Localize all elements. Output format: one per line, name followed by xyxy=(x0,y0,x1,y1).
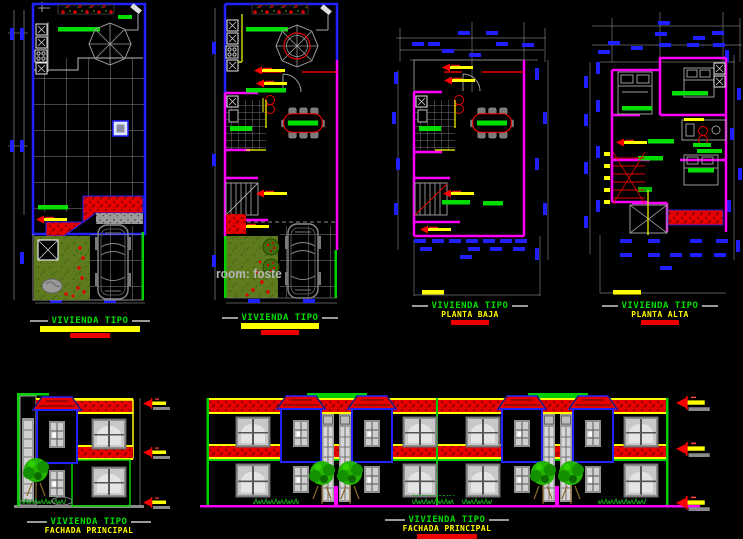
level-marker xyxy=(143,398,170,410)
planta-baja-drawing xyxy=(392,22,548,296)
title-rule xyxy=(702,305,718,307)
window xyxy=(92,419,126,449)
stair-arrow xyxy=(256,190,287,198)
flower-planter xyxy=(252,5,308,14)
planter-box xyxy=(38,240,58,260)
window xyxy=(585,466,601,493)
closet-icon xyxy=(714,76,725,87)
cad-canvas: VIVIENDA TIPO VIVIENDA TIPO VIVIENDA TIP… xyxy=(0,0,743,539)
planta-alta-drawing xyxy=(584,12,742,295)
window xyxy=(236,417,270,447)
title-rule xyxy=(412,305,428,307)
drawing-title: VIVIENDA TIPO xyxy=(622,302,699,310)
title-rule xyxy=(30,320,48,322)
bath-fixtures xyxy=(682,120,726,140)
drawing-subtitle: FACHADA PRINCIPAL xyxy=(403,525,492,533)
double-elevation-title-plate: VIVIENDA TIPO FACHADA PRINCIPAL xyxy=(382,516,512,539)
appliance-icon xyxy=(36,24,47,35)
ground-line xyxy=(200,505,700,508)
sink-icon xyxy=(36,63,47,74)
terrace xyxy=(630,190,667,235)
stair-window xyxy=(543,414,555,502)
wc-fixture xyxy=(418,110,427,122)
drawing-subtitle: PLANTA ALTA xyxy=(631,311,688,319)
flower-planter xyxy=(58,5,114,14)
plan-tree xyxy=(263,239,279,255)
drawing-title: VIVIENDA TIPO xyxy=(409,516,486,524)
entry-door-line xyxy=(555,486,559,506)
level-marker xyxy=(143,497,170,509)
title-rule xyxy=(512,305,528,307)
window xyxy=(624,417,658,447)
entry-tower xyxy=(348,396,396,462)
pergola-fan xyxy=(89,23,131,65)
title-underline-yellow xyxy=(241,323,319,329)
watermark-text: room: foste xyxy=(216,266,282,281)
window xyxy=(236,464,270,497)
dining-set xyxy=(281,108,325,138)
drawing-title: VIVIENDA TIPO xyxy=(432,302,509,310)
entry-tower xyxy=(277,396,325,462)
title-rule xyxy=(489,519,509,521)
window xyxy=(293,466,309,493)
entry-tower xyxy=(33,397,81,463)
title-rule xyxy=(131,521,151,523)
title-rule xyxy=(222,317,238,319)
title-underline-yellow xyxy=(40,326,140,332)
window xyxy=(92,467,126,497)
level-marker xyxy=(676,442,710,457)
door-arrow xyxy=(254,67,285,75)
planta-baja-title-plate: VIVIENDA TIPO PLANTA BAJA xyxy=(408,302,532,325)
appliance-icon xyxy=(227,33,238,44)
stair-window xyxy=(322,414,334,502)
title-underline-red xyxy=(417,534,477,539)
roof-plan-title-plate: VIVIENDA TIPO xyxy=(28,317,152,338)
title-rule xyxy=(132,320,150,322)
title-underline-red xyxy=(70,333,110,338)
stairs xyxy=(415,183,447,215)
window xyxy=(624,464,658,497)
title-underline-red xyxy=(261,330,299,335)
closet-icon xyxy=(714,63,725,74)
title-rule xyxy=(322,317,338,319)
drawing-title: VIVIENDA TIPO xyxy=(52,317,129,325)
entry-tower xyxy=(569,396,617,462)
fixture-icon xyxy=(416,96,427,107)
drawing-subtitle: FACHADA PRINCIPAL xyxy=(45,527,134,535)
drawing-subtitle: PLANTA BAJA xyxy=(441,311,498,319)
terrace-roof-hatch xyxy=(668,210,723,225)
stove-icon xyxy=(226,46,238,58)
furnished-plan-title-plate: VIVIENDA TIPO xyxy=(218,314,342,335)
drawing-title: VIVIENDA TIPO xyxy=(242,314,319,322)
level-marker xyxy=(676,496,710,511)
stove-icon xyxy=(35,50,47,62)
window xyxy=(403,464,437,497)
shrubs xyxy=(598,496,646,505)
door-arrow xyxy=(444,77,475,85)
single-elevation-title-plate: VIVIENDA TIPO FACHADA PRINCIPAL xyxy=(24,518,154,535)
garden-rock xyxy=(42,279,62,293)
stairs xyxy=(226,183,258,215)
cad-linework xyxy=(0,0,743,539)
door-arrow xyxy=(420,226,451,234)
window xyxy=(364,466,380,493)
appliance-icon xyxy=(227,20,238,31)
elevation-pair-drawing xyxy=(200,393,710,511)
entry-door-line xyxy=(334,486,338,506)
entry-door-swing xyxy=(463,74,480,91)
gate-symbol xyxy=(316,4,332,30)
roof-plan-drawing xyxy=(8,2,145,303)
door-arrow xyxy=(616,139,647,147)
wc-door-arc xyxy=(455,96,464,105)
title-rule xyxy=(27,521,47,523)
drawing-title: VIVIENDA TIPO xyxy=(51,518,128,526)
window xyxy=(466,417,500,447)
skylight xyxy=(113,121,128,136)
window xyxy=(466,464,500,497)
wc-fixture xyxy=(229,110,238,122)
shrubs xyxy=(253,496,299,505)
appliance-icon xyxy=(36,37,47,48)
window xyxy=(49,470,65,497)
door-arrow xyxy=(256,80,287,88)
shrubs xyxy=(462,497,492,505)
window xyxy=(403,417,437,447)
furnished-plan-drawing xyxy=(212,4,337,303)
planta-alta-title-plate: VIVIENDA TIPO PLANTA ALTA xyxy=(598,302,722,325)
sink-icon xyxy=(227,60,238,71)
elevation-single-drawing xyxy=(14,393,170,509)
spiral-stair-fan xyxy=(276,25,318,67)
level-marker xyxy=(676,396,710,411)
window xyxy=(514,466,530,493)
side-bay xyxy=(20,396,36,505)
level-marker xyxy=(143,447,170,459)
shrubs xyxy=(412,495,454,505)
wc-door-arc xyxy=(266,96,275,105)
stair-arrow xyxy=(443,190,474,198)
title-rule xyxy=(602,305,618,307)
door-arrow xyxy=(442,64,473,72)
title-rule xyxy=(385,519,405,521)
fixture-icon xyxy=(227,96,238,107)
title-underline-red xyxy=(451,320,489,325)
entry-tower xyxy=(498,396,546,462)
wc-door-arc xyxy=(266,105,275,114)
wc-door-arc xyxy=(455,105,464,114)
dining-set xyxy=(470,108,514,138)
title-underline-red xyxy=(641,320,679,325)
eave-band xyxy=(96,213,143,224)
